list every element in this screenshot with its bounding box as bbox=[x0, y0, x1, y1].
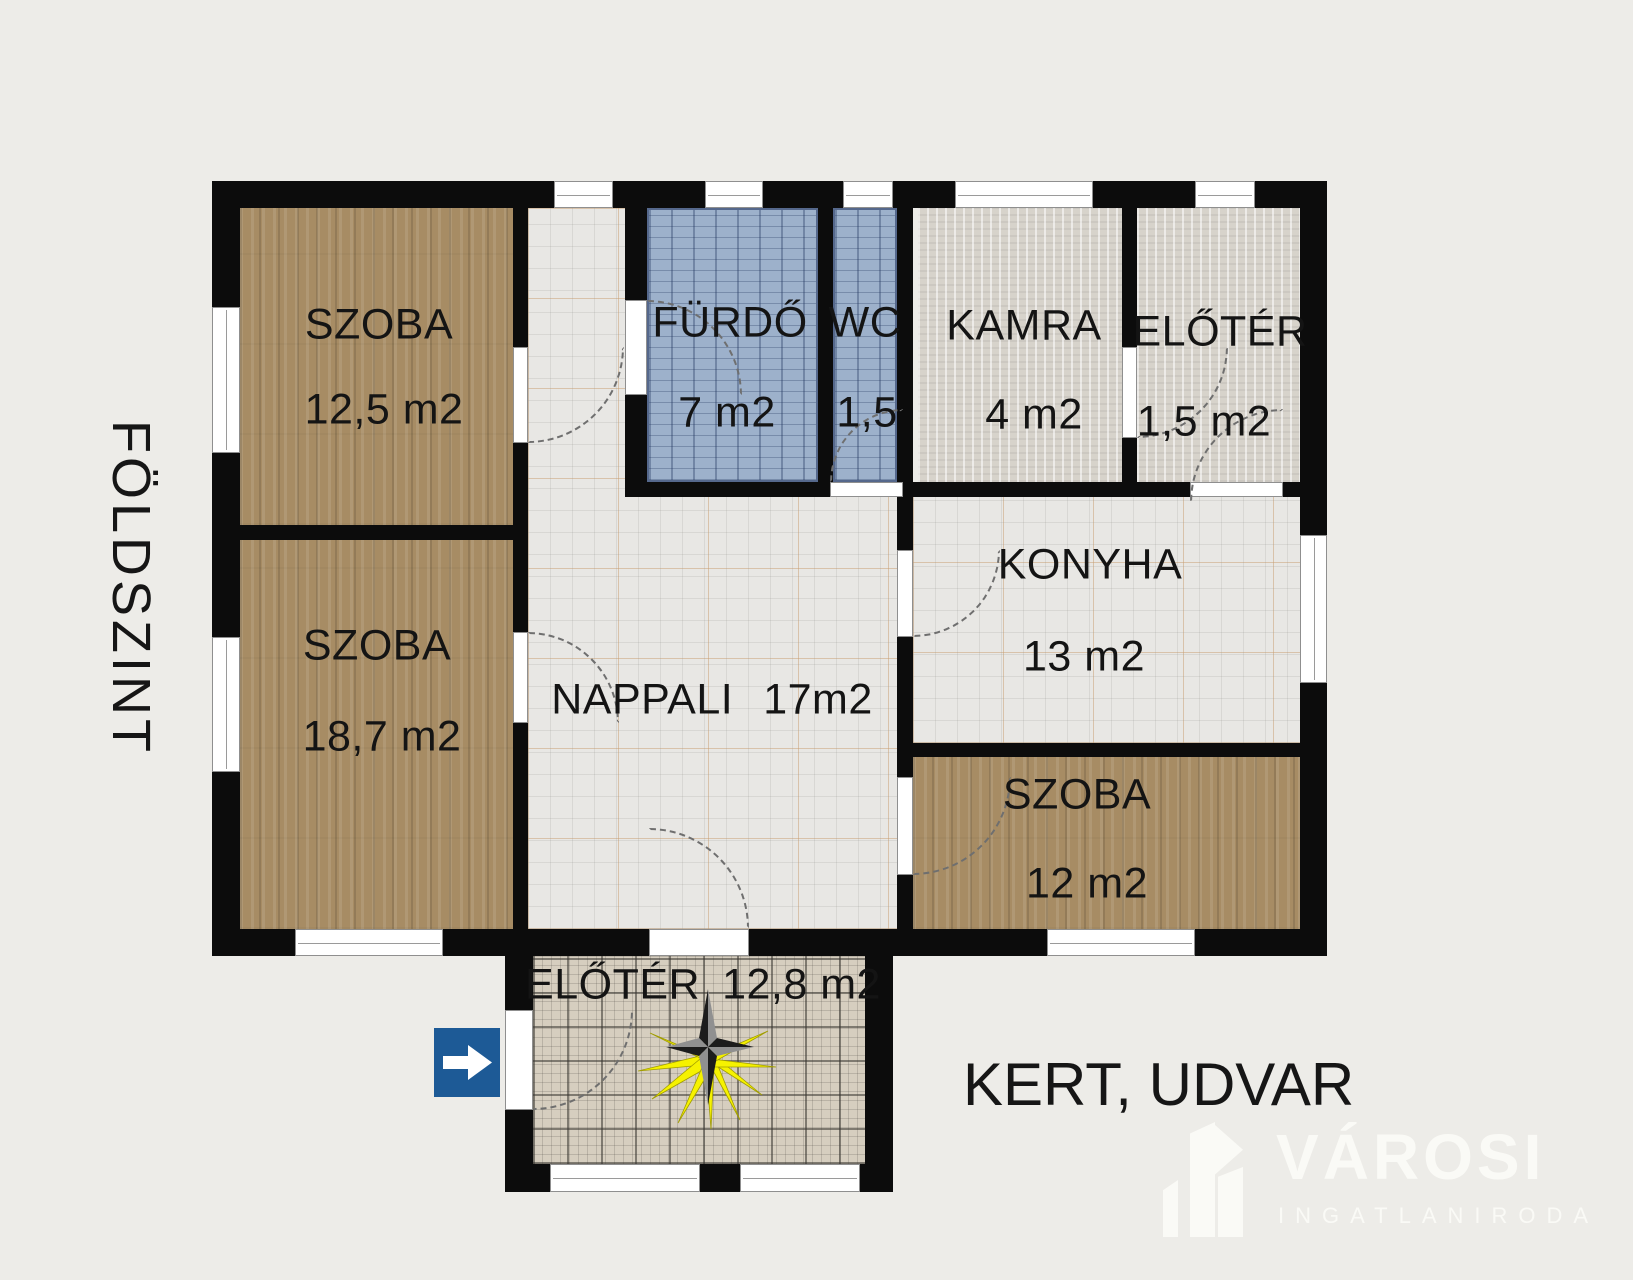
door-konyha bbox=[897, 550, 913, 637]
window-top-furdo bbox=[705, 181, 763, 208]
door-wc bbox=[830, 482, 903, 497]
brand-subtitle: INGATLANIRODA bbox=[1278, 1203, 1599, 1229]
room-label-furdo: FÜRDŐ bbox=[652, 299, 807, 348]
room-area-konyha: 13 m2 bbox=[1023, 633, 1145, 682]
window-top-hall bbox=[554, 181, 613, 208]
room-label-wc: WC bbox=[829, 299, 902, 348]
room-area-szoba-also: 18,7 m2 bbox=[303, 713, 462, 762]
door-szoba-felso bbox=[513, 347, 528, 443]
brand-logo-icon-mid bbox=[1218, 1167, 1243, 1237]
door-nappali-eloter bbox=[649, 929, 749, 956]
entrance-sign bbox=[434, 1028, 500, 1097]
brand-logo-icon-tower bbox=[1190, 1122, 1215, 1237]
window-left-szoba-also bbox=[212, 637, 240, 772]
brand-logo-icon bbox=[1163, 1180, 1178, 1237]
wall-outer-top bbox=[212, 181, 1327, 208]
door-szoba-also bbox=[513, 632, 528, 723]
floor-plan-canvas: SZOBA 12,5 m2 SZOBA 18,7 m2 FÜRDŐ 7 m2 W… bbox=[0, 0, 1633, 1280]
door-kamra-eloter bbox=[1122, 347, 1137, 438]
room-label-nappali-name: NAPPALI bbox=[551, 676, 733, 724]
room-area-kamra: 4 m2 bbox=[985, 391, 1083, 440]
room-label-nappali: NAPPALI17m2 bbox=[551, 676, 873, 725]
room-area-wc: 1,5 bbox=[836, 389, 897, 438]
door-szoba-jobb bbox=[897, 777, 913, 875]
window-left-szoba-felso bbox=[212, 307, 240, 453]
room-floor-szoba-felso bbox=[240, 208, 513, 525]
wall-konyha-szoba bbox=[897, 743, 1327, 757]
room-label-szoba-jobb: SZOBA bbox=[1003, 771, 1151, 820]
door-main-entry bbox=[505, 1010, 533, 1110]
brand-name: VÁROSI bbox=[1276, 1120, 1545, 1194]
wall-szoba-divider bbox=[240, 525, 513, 540]
room-area-szoba-jobb: 12 m2 bbox=[1026, 860, 1148, 909]
window-bottom-szoba-also bbox=[295, 929, 443, 956]
floor-title: FÖLDSZINT bbox=[100, 420, 162, 756]
door-furdo bbox=[625, 300, 647, 395]
room-area-furdo: 7 m2 bbox=[678, 389, 776, 438]
entrance-arrow-icon bbox=[434, 1028, 500, 1097]
window-top-kamra bbox=[955, 181, 1093, 208]
window-right-konyha bbox=[1300, 535, 1327, 683]
room-area-eloter-felso: 1,5 m2 bbox=[1137, 398, 1271, 447]
window-ext-bottom-2 bbox=[740, 1164, 860, 1192]
window-bottom-szoba-jobb bbox=[1047, 929, 1195, 956]
wall-hall-left bbox=[513, 208, 528, 929]
room-label-konyha: KONYHA bbox=[998, 541, 1183, 590]
room-label-szoba-felso: SZOBA bbox=[305, 301, 453, 350]
room-label-eloter-felso: ELŐTÉR bbox=[1132, 308, 1307, 357]
room-label-nappali-area: 17m2 bbox=[763, 676, 873, 724]
room-area-szoba-felso: 12,5 m2 bbox=[305, 386, 464, 435]
wall-outer-left bbox=[212, 181, 240, 956]
room-label-szoba-also: SZOBA bbox=[303, 622, 451, 671]
window-top-eloter bbox=[1195, 181, 1255, 208]
window-ext-bottom-1 bbox=[550, 1164, 700, 1192]
compass-star-icon bbox=[638, 975, 788, 1135]
outside-area-label: KERT, UDVAR bbox=[963, 1050, 1354, 1119]
room-floor-konyha bbox=[913, 497, 1300, 743]
room-label-kamra: KAMRA bbox=[946, 302, 1101, 351]
window-top-wc bbox=[843, 181, 893, 208]
